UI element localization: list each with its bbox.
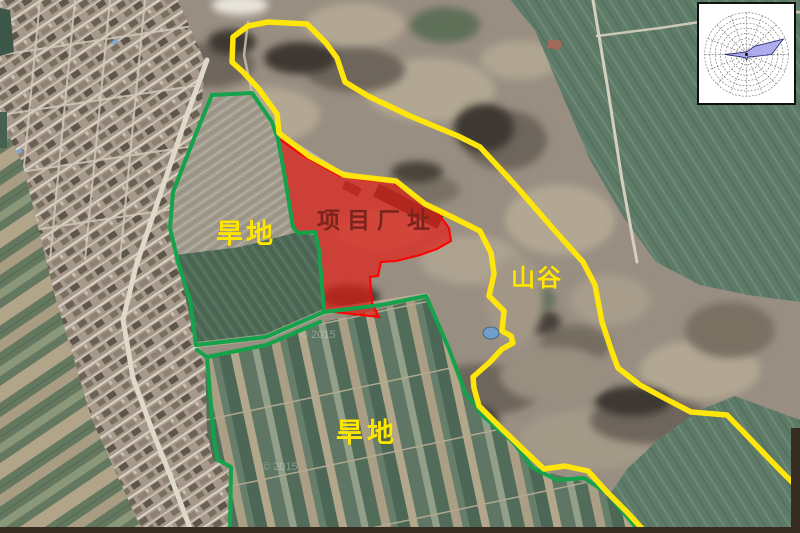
- wind-rose-inset: [697, 2, 796, 105]
- wind-rose-chart: [699, 4, 794, 103]
- pond: [483, 327, 499, 339]
- farm-building: [547, 39, 561, 50]
- wind-rose-polygon: [725, 39, 783, 60]
- imagery-watermark-2: © 2015: [262, 461, 298, 473]
- trees-left-edge: [0, 112, 7, 148]
- map-figure: © 2015 © 2015 项目厂址 旱地 旱地 山谷: [0, 0, 800, 533]
- wind-rose-center-dot: [745, 53, 748, 56]
- imagery-watermark: © 2015: [300, 329, 336, 341]
- satellite-map: © 2015 © 2015: [0, 0, 800, 533]
